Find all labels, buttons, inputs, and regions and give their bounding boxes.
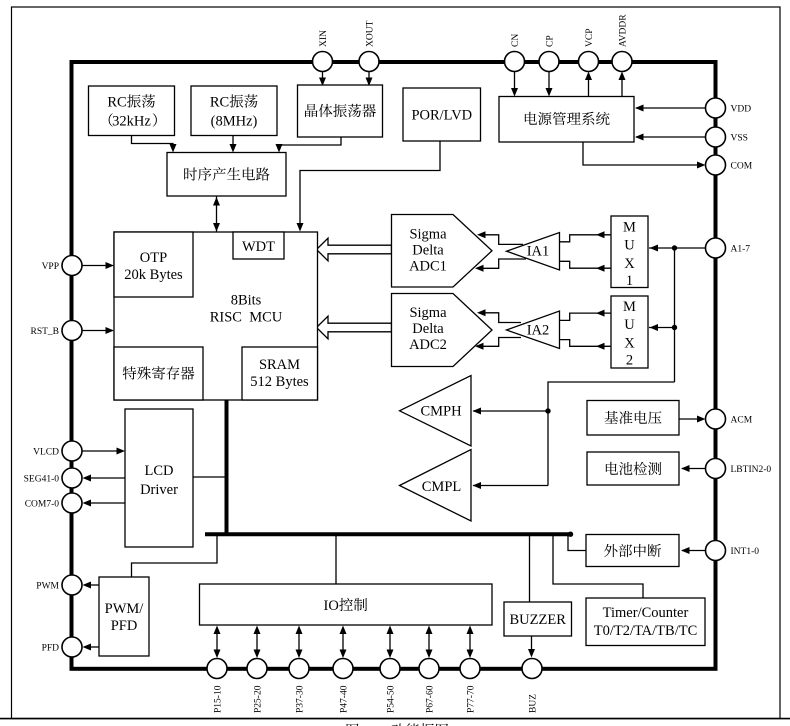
svg-text:PWM/: PWM/ [105,601,145,617]
svg-text:VLCD: VLCD [33,448,59,458]
svg-text:CP: CP [546,35,556,47]
svg-text:1: 1 [626,273,633,289]
svg-text:CMPL: CMPL [422,479,462,495]
svg-text:RC: RC [107,95,126,111]
svg-text:8Bits: 8Bits [231,293,262,309]
svg-text:Driver: Driver [140,482,178,498]
svg-text:WDT: WDT [242,239,275,255]
svg-text:M: M [623,220,636,236]
svg-text:P37-30: P37-30 [296,685,306,713]
svg-text:BUZZER: BUZZER [510,612,567,628]
svg-text:COM7-0: COM7-0 [25,500,60,510]
svg-text:X: X [624,336,635,352]
svg-text:AVDDR: AVDDR [619,14,629,47]
svg-text:LBTIN2-0: LBTIN2-0 [731,465,772,475]
svg-text:ACM: ACM [731,416,753,426]
svg-text:P47-40: P47-40 [340,685,350,713]
svg-text:P77-70: P77-70 [467,685,477,713]
svg-text:Sigma: Sigma [409,226,447,242]
svg-text:RST_B: RST_B [30,327,59,337]
svg-text:CN: CN [511,34,521,47]
svg-text:IO: IO [324,598,339,614]
svg-text:P54-50: P54-50 [387,685,397,713]
svg-text:RC: RC [210,95,229,111]
svg-text:PFD: PFD [111,618,138,634]
svg-text:ADC1: ADC1 [409,259,447,275]
svg-text:U: U [624,238,635,254]
svg-text:32kHz: 32kHz [112,114,151,130]
svg-text:Sigma: Sigma [409,305,447,321]
svg-text:2: 2 [626,353,633,369]
svg-text:ADC2: ADC2 [409,337,447,353]
svg-text:VSS: VSS [731,134,748,144]
svg-text:Delta: Delta [412,242,444,258]
svg-text:OTP: OTP [140,250,167,266]
svg-text:VPP: VPP [42,262,59,272]
svg-text:PFD: PFD [42,644,60,654]
svg-text:P15-10: P15-10 [214,685,224,713]
svg-text:P67-60: P67-60 [426,685,436,713]
svg-text:LCD: LCD [145,463,174,479]
svg-text:P25-20: P25-20 [254,685,264,713]
svg-text:COM: COM [731,162,753,172]
svg-text:RISC MCU: RISC MCU [210,310,283,326]
svg-text:Delta: Delta [412,321,444,337]
svg-text:BUZ: BUZ [529,694,539,713]
svg-text:X: X [624,256,635,272]
svg-text:IA2: IA2 [527,322,550,338]
svg-text:T0/T2/TA/TB/TC: T0/T2/TA/TB/TC [594,623,698,639]
svg-text:XOUT: XOUT [366,20,376,47]
svg-text:Timer/Counter: Timer/Counter [603,605,689,621]
svg-text:(8MHz): (8MHz) [211,114,258,130]
svg-text:VDD: VDD [731,105,752,115]
svg-text:INT1-0: INT1-0 [731,547,760,557]
svg-text:IA1: IA1 [527,244,550,260]
svg-text:M: M [623,299,636,315]
svg-text:20k Bytes: 20k Bytes [124,267,183,283]
svg-text:U: U [624,317,635,333]
svg-text:SEG41-0: SEG41-0 [24,475,60,485]
svg-text:A1-7: A1-7 [731,245,751,255]
svg-text:XIN: XIN [319,30,329,47]
svg-text:VCP: VCP [585,29,595,47]
svg-text:CMPH: CMPH [420,404,462,420]
svg-text:SRAM: SRAM [259,357,300,373]
svg-text:POR/LVD: POR/LVD [411,108,472,124]
svg-text:PWM: PWM [36,582,59,592]
svg-text:512 Bytes: 512 Bytes [250,374,309,390]
